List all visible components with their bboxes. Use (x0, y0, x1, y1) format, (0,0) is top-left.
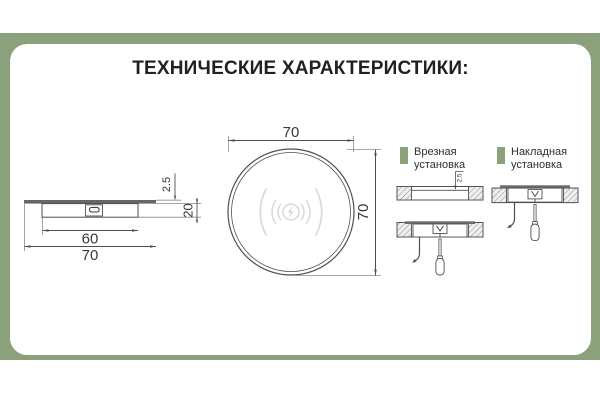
screwdriver-icon (436, 239, 444, 275)
dim-recess-depth-label: 2.5 (457, 173, 464, 182)
dim-top-width: 70 (229, 124, 354, 152)
surface-mount-diagram (492, 185, 578, 240)
cable-icon (507, 203, 515, 229)
top-view: 70 70 (228, 124, 381, 276)
usb-port-icon (90, 207, 100, 212)
flush-mount-diagram: 2.5 (397, 172, 483, 276)
dim-flange-width: 70 (25, 245, 157, 264)
mounting-clip-icon (528, 189, 542, 199)
cable-icon (412, 237, 420, 263)
technical-drawings: 60 70 2.5 20 (0, 0, 600, 400)
dim-flange-width-label: 70 (82, 247, 99, 264)
countertop-hatch-left (397, 223, 412, 238)
dim-body-width-label: 60 (82, 231, 99, 248)
mounting-clip-icon (433, 224, 447, 234)
countertop-hatch-right (469, 187, 484, 201)
flange-profile (24, 200, 156, 204)
screwdriver-icon (531, 205, 539, 241)
dim-body-width: 60 (43, 229, 139, 247)
dim-flange-thickness: 2.5 (161, 174, 176, 201)
countertop-hatch-right (469, 223, 484, 238)
dim-top-width-label: 70 (283, 124, 300, 141)
dim-right-height-label: 70 (355, 204, 372, 221)
dim-height: 20 (181, 198, 199, 223)
dim-flange-thickness-label: 2.5 (161, 177, 173, 192)
countertop-hatch-left (397, 187, 412, 201)
surface-installed-section (492, 185, 578, 240)
countertop-hatch-left (492, 188, 507, 203)
side-section-view: 60 70 2.5 20 (24, 174, 201, 265)
dim-height-label: 20 (181, 203, 196, 217)
countertop-hatch-right (564, 188, 579, 203)
flush-cutout-section: 2.5 (397, 172, 483, 201)
flush-installed-section (397, 221, 483, 275)
